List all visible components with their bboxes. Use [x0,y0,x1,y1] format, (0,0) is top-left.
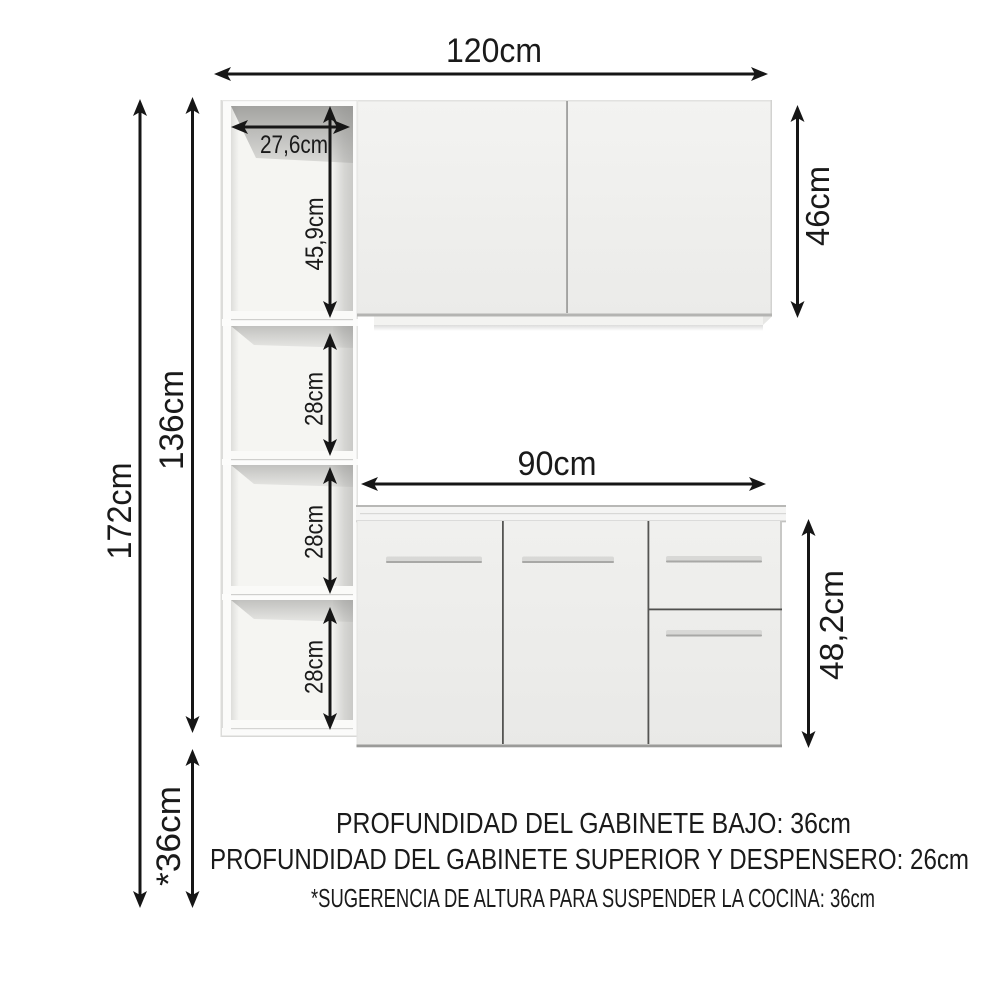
svg-text:28cm: 28cm [301,640,329,694]
svg-text:28cm: 28cm [301,505,329,559]
svg-text:*36cm: *36cm [150,786,188,886]
svg-text:27,6cm: 27,6cm [260,131,328,159]
svg-text:48,2cm: 48,2cm [813,570,850,680]
svg-text:PROFUNDIDAD DEL GABINETE BAJO:: PROFUNDIDAD DEL GABINETE BAJO: 36cm [336,808,851,840]
svg-text:172cm: 172cm [101,463,139,560]
svg-text:136cm: 136cm [153,370,191,470]
svg-text:90cm: 90cm [518,445,597,483]
svg-text:120cm: 120cm [446,32,542,70]
svg-text:28cm: 28cm [301,372,329,426]
svg-text:45,9cm: 45,9cm [301,198,329,271]
svg-text:46cm: 46cm [799,166,836,246]
svg-text:*SUGERENCIA DE ALTURA PARA SUS: *SUGERENCIA DE ALTURA PARA SUSPENDER LA … [311,883,875,913]
svg-text:PROFUNDIDAD DEL GABINETE SUPER: PROFUNDIDAD DEL GABINETE SUPERIOR Y DESP… [210,844,969,876]
